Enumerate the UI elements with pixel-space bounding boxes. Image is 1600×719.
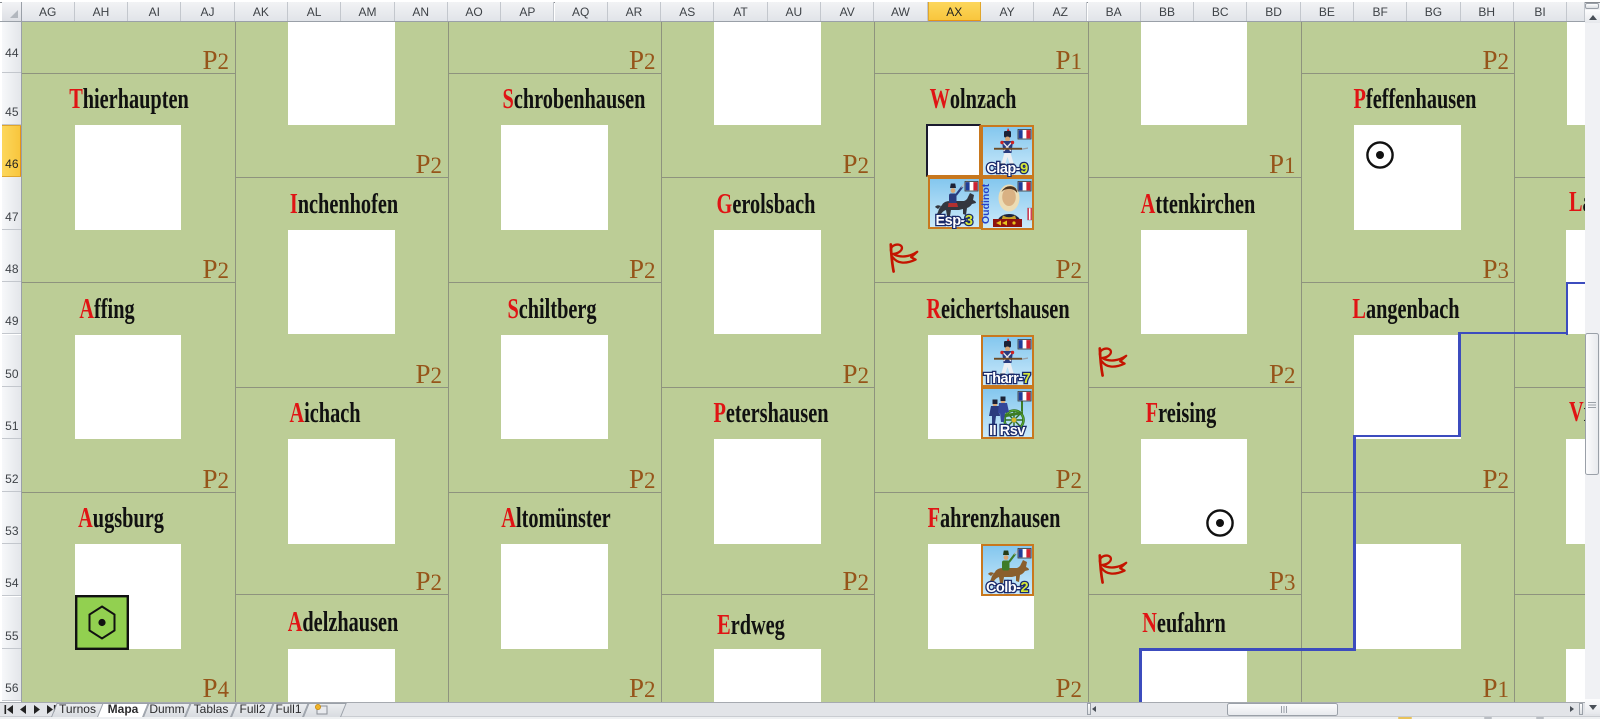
- svg-text:Esp-3: Esp-3: [935, 213, 972, 229]
- svg-text:Oudinot: Oudinot: [981, 184, 992, 225]
- svg-text:II Rsv: II Rsv: [989, 423, 1025, 439]
- svg-text:Colb-2: Colb-2: [986, 580, 1029, 596]
- svg-text:Tharr-7: Tharr-7: [984, 371, 1031, 387]
- svg-text:Clap-9: Clap-9: [986, 161, 1028, 177]
